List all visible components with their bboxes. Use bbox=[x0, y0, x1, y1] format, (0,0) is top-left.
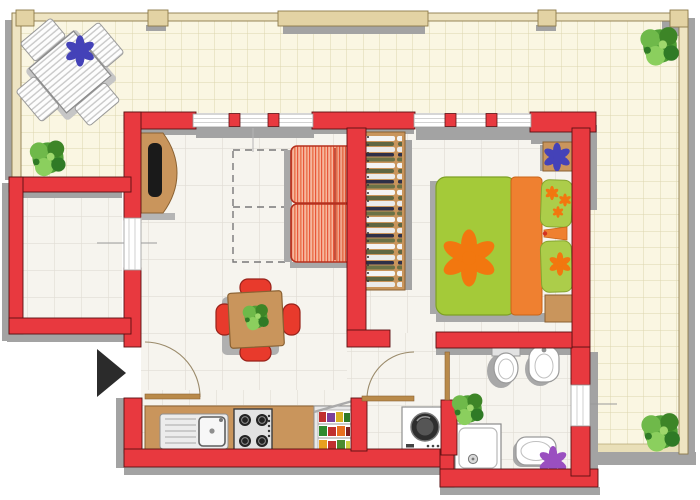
bedroom-door-leaf bbox=[362, 396, 414, 401]
shadow bbox=[590, 352, 598, 488]
floor-plan-page bbox=[0, 0, 700, 500]
wall-right-bath-lower bbox=[571, 426, 590, 476]
sofa-shadow bbox=[290, 262, 356, 268]
striped-sofa bbox=[291, 146, 353, 262]
kitchen bbox=[145, 400, 448, 453]
sink bbox=[160, 414, 228, 449]
tv-cabinet-shadow bbox=[142, 213, 175, 220]
shadow-under-window bbox=[416, 127, 533, 140]
shadow-pergola bbox=[283, 26, 425, 34]
floor-plan bbox=[0, 0, 700, 500]
wall-divider-foot bbox=[347, 330, 390, 347]
window-mullion bbox=[486, 114, 497, 127]
wall-kitchen-stub bbox=[351, 398, 367, 451]
railing-post bbox=[670, 10, 688, 27]
wall-bathroom-top bbox=[436, 332, 572, 348]
entrance-door-leaf bbox=[145, 394, 200, 399]
wall-balcony-bottom bbox=[9, 318, 131, 334]
window-living-top bbox=[193, 114, 313, 128]
shadow bbox=[124, 467, 460, 475]
wardrobe-clothes bbox=[366, 135, 402, 287]
bed-blanket-fold bbox=[511, 177, 542, 315]
balcony-tiles bbox=[23, 190, 122, 318]
railing-post bbox=[538, 10, 556, 26]
wall-top-center bbox=[312, 112, 415, 129]
tv bbox=[148, 143, 162, 197]
pergola-beam bbox=[278, 11, 428, 26]
wall-right-bath-upper bbox=[571, 347, 590, 385]
railing-post bbox=[16, 10, 34, 26]
wall-right-bedroom bbox=[572, 128, 590, 347]
window-mullion bbox=[445, 114, 456, 127]
sink-drain bbox=[209, 428, 214, 433]
washer-drum-inner bbox=[417, 419, 434, 436]
sink-faucet bbox=[219, 418, 223, 422]
chair bbox=[283, 304, 300, 335]
window-mullion bbox=[268, 114, 279, 127]
wall-bottom-kitchen bbox=[124, 449, 454, 467]
wall-balcony-left bbox=[9, 177, 23, 334]
stove-top bbox=[234, 409, 272, 452]
railing-right bbox=[679, 13, 688, 454]
toilet bbox=[492, 345, 520, 383]
shadow bbox=[590, 125, 597, 210]
wall-left-lower bbox=[124, 398, 142, 453]
shadow-under-window bbox=[196, 127, 314, 138]
window-mullion bbox=[229, 114, 240, 127]
wall-left-mid bbox=[124, 268, 141, 347]
bathroom-door-leaf bbox=[445, 352, 450, 400]
window-bathroom bbox=[571, 385, 590, 426]
nightstand-bottom bbox=[545, 295, 575, 322]
shadow bbox=[688, 18, 695, 458]
fridge bbox=[314, 400, 356, 453]
shower bbox=[455, 424, 501, 472]
wall-divider bbox=[347, 128, 366, 332]
window-bedroom-top bbox=[414, 114, 531, 128]
stove bbox=[234, 409, 272, 452]
railing-post bbox=[148, 10, 168, 26]
window-balcony bbox=[124, 218, 141, 270]
wall-balcony-top bbox=[9, 177, 131, 192]
shower-tray bbox=[455, 424, 501, 472]
shadow bbox=[440, 487, 600, 495]
entrance-arrow bbox=[97, 349, 126, 397]
shadow bbox=[2, 183, 9, 341]
shower-drain-hole bbox=[472, 458, 475, 461]
wall-left-upper bbox=[124, 112, 141, 220]
